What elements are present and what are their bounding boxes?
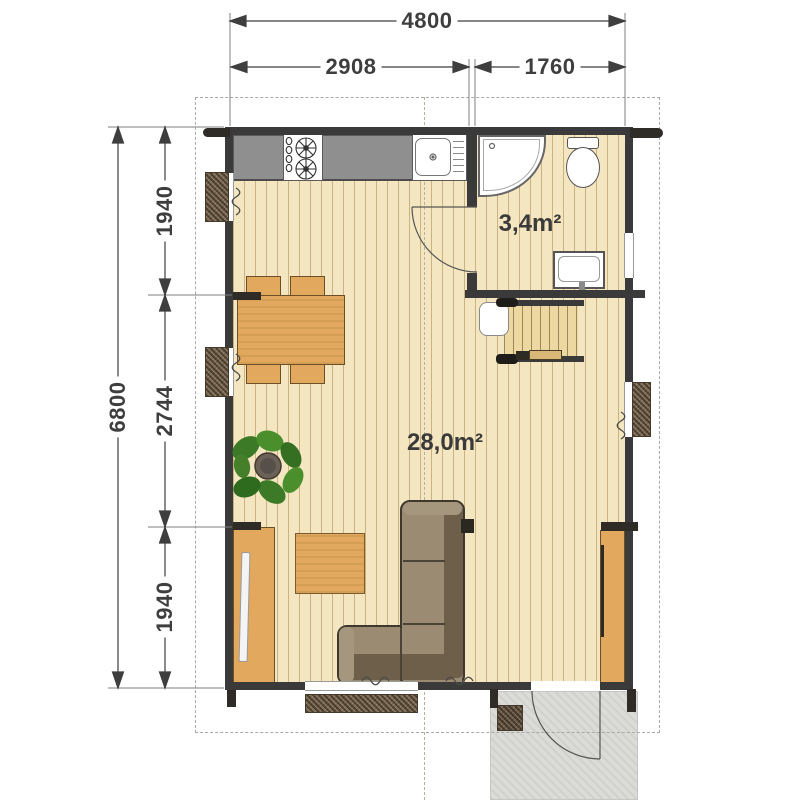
wall-tie-left-1 bbox=[233, 292, 261, 300]
washbasin-faucet bbox=[579, 282, 585, 290]
dim-side-seg-2: 2744 bbox=[154, 381, 176, 442]
floor-plan: 4800 2908 1760 6800 1940 2744 1940 3,4m²… bbox=[0, 0, 800, 800]
window-bath-right bbox=[624, 233, 634, 278]
dim-side-total: 6800 bbox=[107, 377, 129, 438]
log-end-bottom-left bbox=[227, 690, 236, 707]
dim-top-left: 2908 bbox=[321, 56, 382, 78]
sofa-cushion-line bbox=[403, 623, 445, 625]
sofa-armrest-left bbox=[339, 627, 354, 683]
wall-bath-bottom bbox=[465, 290, 645, 298]
window-sill-bottom bbox=[305, 694, 418, 713]
sofa-armrest-top bbox=[403, 502, 462, 515]
living-area-label: 28,0m² bbox=[407, 429, 483, 457]
roof-overhang-outline bbox=[195, 97, 660, 733]
dim-side-seg-3: 1940 bbox=[154, 577, 176, 638]
sofa-backrest-bottom bbox=[343, 654, 455, 680]
log-end-top-right bbox=[630, 128, 663, 138]
window-sill-left-1 bbox=[205, 172, 229, 222]
doormat bbox=[497, 705, 523, 731]
wall-top bbox=[225, 127, 633, 135]
bathroom-area-label: 3,4m² bbox=[499, 210, 562, 238]
entrance-door-opening bbox=[531, 681, 600, 691]
dim-top-total: 4800 bbox=[397, 10, 458, 32]
window-sill-right bbox=[632, 382, 651, 437]
wall-bath-divider-upper bbox=[467, 127, 477, 207]
sofa-cushion-line bbox=[400, 628, 402, 681]
log-end-top-left bbox=[203, 128, 230, 137]
wall-tie-right bbox=[601, 522, 638, 531]
sofa-side-table bbox=[461, 519, 474, 533]
window-sill-left-2 bbox=[205, 347, 229, 397]
dim-side-seg-1: 1940 bbox=[154, 181, 176, 242]
porch-post-left bbox=[490, 689, 498, 708]
porch-post-right bbox=[627, 689, 636, 712]
sofa-cushion-line bbox=[403, 560, 445, 562]
window-bottom bbox=[305, 681, 418, 691]
dim-top-right: 1760 bbox=[520, 56, 581, 78]
wall-tie-left-2 bbox=[233, 522, 261, 530]
